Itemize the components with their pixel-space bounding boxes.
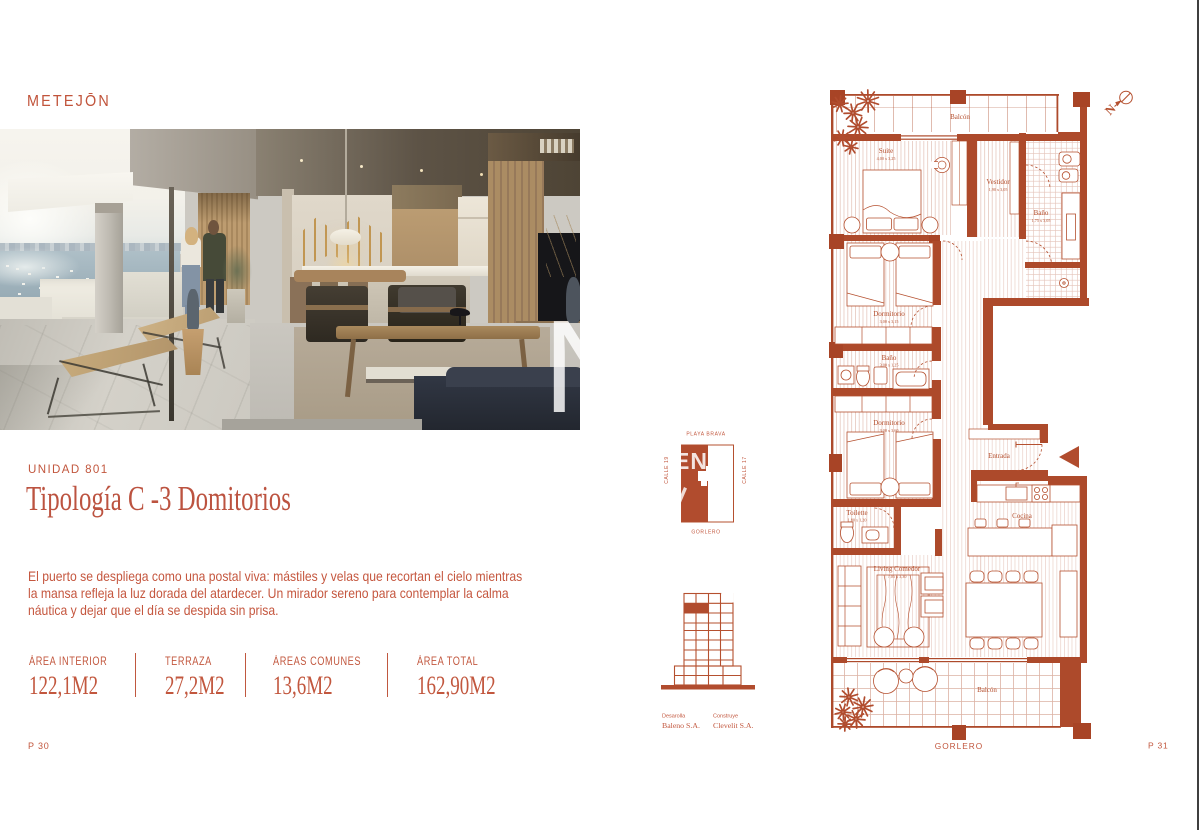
svg-text:Desarolla: Desarolla	[662, 714, 686, 720]
svg-text:Entrada: Entrada	[988, 452, 1011, 460]
svg-text:Clevelit S.A.: Clevelit S.A.	[713, 721, 754, 730]
svg-text:EN: EN	[674, 448, 708, 474]
svg-text:PLAYA BRAVA: PLAYA BRAVA	[686, 432, 725, 438]
svg-text:Balcón: Balcón	[950, 113, 970, 121]
svg-text:GORLERO: GORLERO	[935, 741, 984, 751]
svg-text:Construye: Construye	[713, 714, 738, 720]
svg-text:Baleno S.A.: Baleno S.A.	[662, 721, 700, 730]
svg-text:GORLERO: GORLERO	[691, 530, 720, 536]
svg-text:Vestidor: Vestidor	[986, 178, 1010, 186]
svg-text:Living Comedor: Living Comedor	[874, 565, 921, 573]
svg-text:N: N	[1102, 102, 1118, 118]
svg-text:P 31: P 31	[1148, 741, 1169, 751]
svg-text:Cocina: Cocina	[1012, 512, 1033, 520]
svg-text:Baño: Baño	[1034, 209, 1049, 217]
svg-text:Suite: Suite	[879, 147, 893, 155]
svg-text:Dormitorio: Dormitorio	[873, 419, 905, 427]
svg-text:Dormitorio: Dormitorio	[873, 310, 905, 318]
svg-text:Toilette: Toilette	[846, 509, 867, 517]
svg-text:CALLE 17: CALLE 17	[742, 456, 748, 484]
svg-text:Baño: Baño	[882, 354, 897, 362]
svg-text:Balcón: Balcón	[977, 686, 997, 694]
svg-text:CALLE 19: CALLE 19	[664, 456, 670, 484]
